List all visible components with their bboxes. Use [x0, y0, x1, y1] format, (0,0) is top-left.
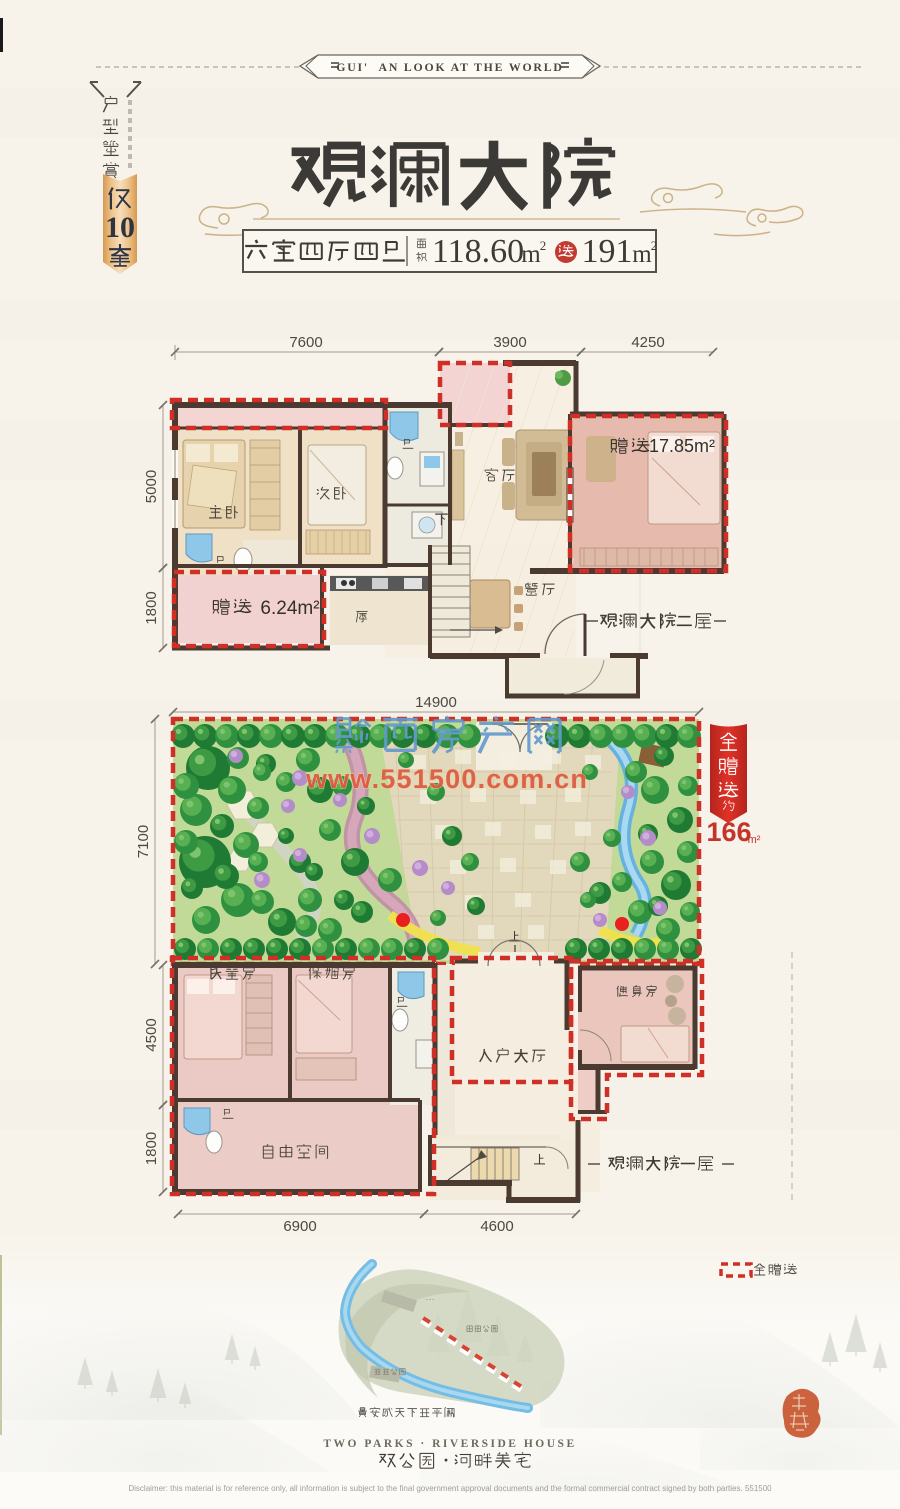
svg-text:4600: 4600: [480, 1218, 513, 1235]
svg-text:3900: 3900: [493, 334, 526, 351]
svg-text:14900: 14900: [415, 694, 457, 711]
svg-text:10: 10: [105, 211, 135, 244]
svg-text:m: m: [521, 241, 541, 268]
svg-text:118.60: 118.60: [432, 233, 524, 270]
svg-text:6.24m²: 6.24m²: [260, 598, 319, 619]
svg-text:7100: 7100: [135, 825, 152, 858]
svg-text:m: m: [632, 241, 652, 268]
svg-text:2: 2: [540, 238, 547, 253]
svg-text:5000: 5000: [143, 470, 160, 503]
svg-text:6900: 6900: [283, 1218, 316, 1235]
svg-text:Disclaimer: this material is f: Disclaimer: this material is for referen…: [128, 1484, 772, 1493]
svg-text:···: ···: [426, 1294, 435, 1304]
svg-text:TWO PARKS · RIVERSIDE HOUSE: TWO PARKS · RIVERSIDE HOUSE: [323, 1438, 576, 1450]
svg-text:GUI' AN LOOK AT THE WORLD: GUI' AN LOOK AT THE WORLD: [336, 60, 564, 74]
svg-text:m²: m²: [748, 834, 761, 846]
svg-text:191: 191: [582, 233, 633, 270]
svg-text:·: ·: [443, 1450, 449, 1470]
svg-text:166: 166: [706, 817, 751, 847]
svg-text:4250: 4250: [631, 334, 664, 351]
svg-text:4500: 4500: [143, 1018, 160, 1051]
svg-text:1800: 1800: [143, 1132, 160, 1165]
svg-text:2: 2: [651, 238, 658, 253]
svg-text:7600: 7600: [289, 334, 322, 351]
svg-text:17.85m²: 17.85m²: [649, 436, 715, 456]
svg-text:1800: 1800: [143, 591, 160, 624]
svg-text:www.551500.com.cn: www.551500.com.cn: [305, 764, 588, 794]
